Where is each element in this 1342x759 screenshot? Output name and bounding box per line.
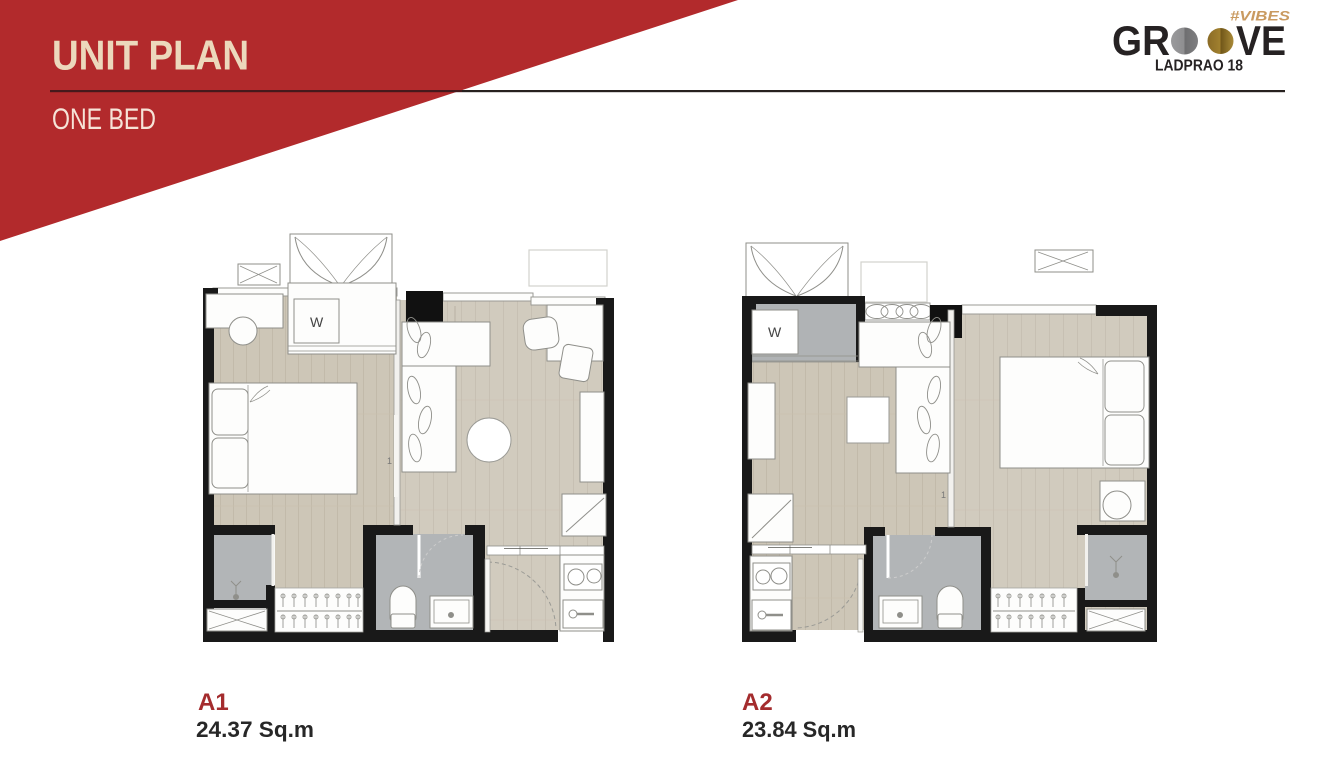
svg-text:ONE BED: ONE BED	[52, 103, 156, 136]
svg-text:1: 1	[387, 456, 392, 466]
svg-text:UNIT PLAN: UNIT PLAN	[52, 32, 249, 79]
svg-text:24.37 Sq.m: 24.37 Sq.m	[196, 717, 314, 742]
svg-text:23.84 Sq.m: 23.84 Sq.m	[742, 717, 856, 742]
svg-text:A2: A2	[742, 689, 773, 716]
svg-text:1: 1	[941, 490, 946, 500]
svg-text:A1: A1	[198, 689, 229, 716]
svg-text:#VIBES: #VIBES	[1230, 8, 1291, 24]
svg-text:W: W	[768, 324, 782, 340]
svg-text:VE: VE	[1236, 17, 1286, 64]
svg-text:W: W	[310, 314, 324, 330]
svg-text:LADPRAO 18: LADPRAO 18	[1155, 58, 1243, 75]
